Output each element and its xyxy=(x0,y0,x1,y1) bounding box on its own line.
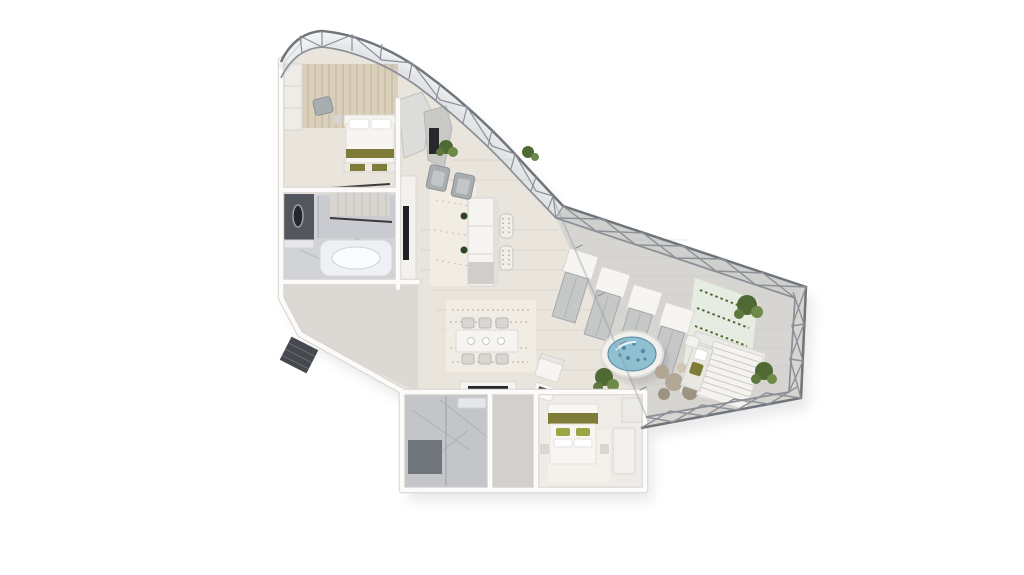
guest-bathroom xyxy=(404,394,490,488)
bed2-white-pillow-right xyxy=(574,439,592,447)
bed2-nightstand-right xyxy=(600,444,609,454)
nightstand xyxy=(333,115,342,124)
bed-pillow-right xyxy=(371,119,391,129)
bed2-headboard xyxy=(548,404,598,414)
floorplan-rendering xyxy=(0,0,1024,575)
sofa xyxy=(468,198,498,286)
vanity-counter xyxy=(284,240,314,248)
bedroom2-bench xyxy=(613,428,635,474)
closet xyxy=(284,64,302,130)
bed-pillow-left xyxy=(349,119,369,129)
bed-olive-throw xyxy=(346,149,394,158)
bedroom2-dresser xyxy=(622,398,642,422)
bed2-green-pillow-left xyxy=(556,428,570,436)
pendant-lights xyxy=(468,338,505,345)
bench-cushion-left xyxy=(350,164,365,171)
bathtub xyxy=(332,247,380,269)
bed2-olive-band xyxy=(548,413,598,424)
stairs xyxy=(330,190,390,216)
corridor-floor xyxy=(492,394,536,488)
pouf-bottom xyxy=(500,246,513,270)
shower-recess xyxy=(408,440,442,474)
bed2-nightstand-left xyxy=(540,444,549,454)
plant-cluster-window xyxy=(522,146,539,161)
window-armchair-1 xyxy=(426,164,451,192)
second-bedroom xyxy=(538,394,644,488)
coffee-plant-a xyxy=(461,213,468,220)
vanity-mirror xyxy=(293,205,303,227)
window-armchair-2 xyxy=(451,172,476,200)
coffee-plant-b xyxy=(461,247,468,254)
pouf-top xyxy=(500,214,513,238)
tv-screen xyxy=(403,206,409,260)
guest-vanity xyxy=(458,398,486,408)
bed2-white-pillow-left xyxy=(554,439,572,447)
bed2-green-pillow-right xyxy=(576,428,590,436)
floorplan-canvas xyxy=(0,0,1024,575)
bench-cushion-right xyxy=(372,164,387,171)
